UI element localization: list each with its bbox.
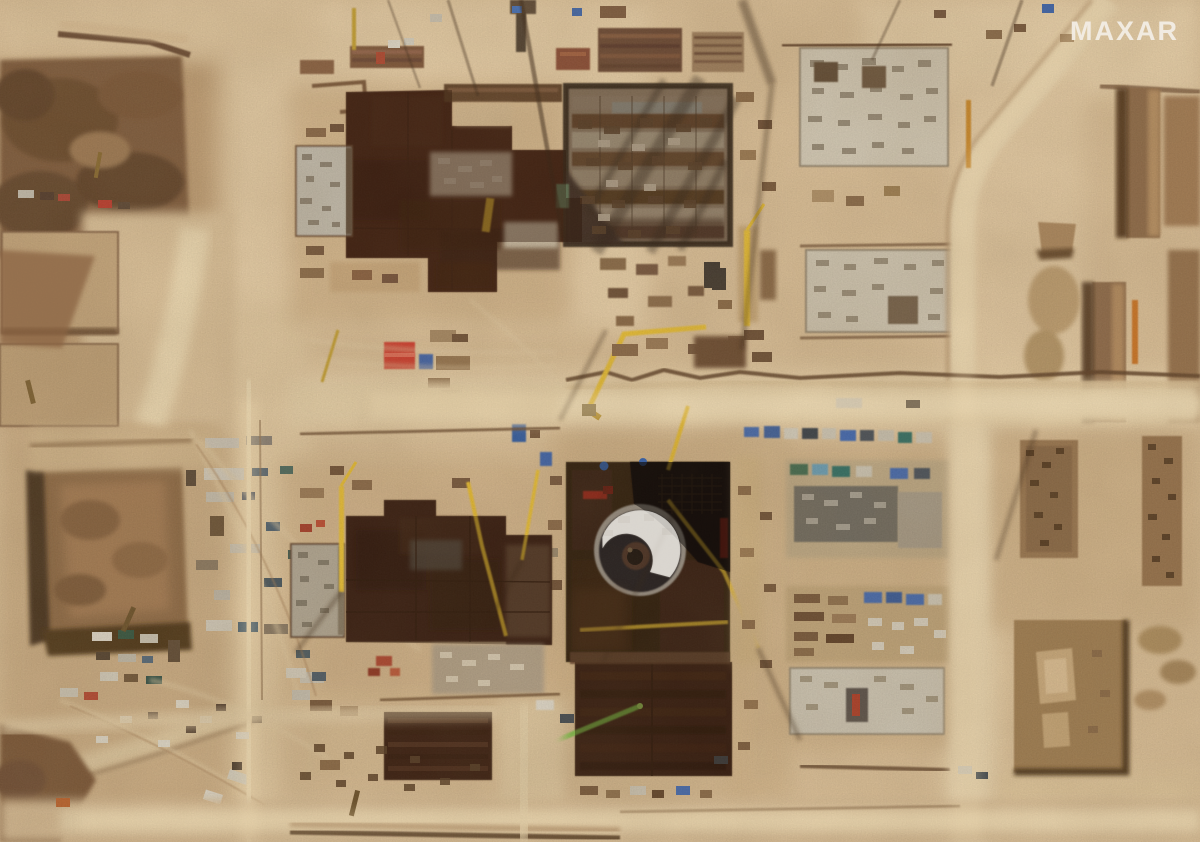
svg-text:MAXAR: MAXAR xyxy=(1070,16,1179,46)
